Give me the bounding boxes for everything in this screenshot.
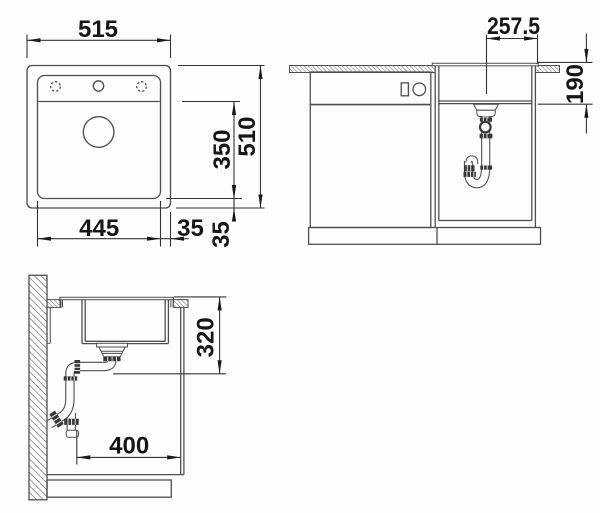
- svg-text:35: 35: [208, 221, 235, 248]
- svg-text:400: 400: [109, 433, 149, 460]
- svg-text:510: 510: [234, 117, 261, 157]
- svg-text:515: 515: [78, 16, 118, 43]
- svg-text:445: 445: [79, 215, 119, 242]
- svg-text:35: 35: [177, 215, 204, 242]
- svg-text:257.5: 257.5: [487, 13, 540, 40]
- svg-text:320: 320: [193, 317, 220, 357]
- svg-text:190: 190: [562, 64, 589, 104]
- svg-text:350: 350: [209, 129, 236, 169]
